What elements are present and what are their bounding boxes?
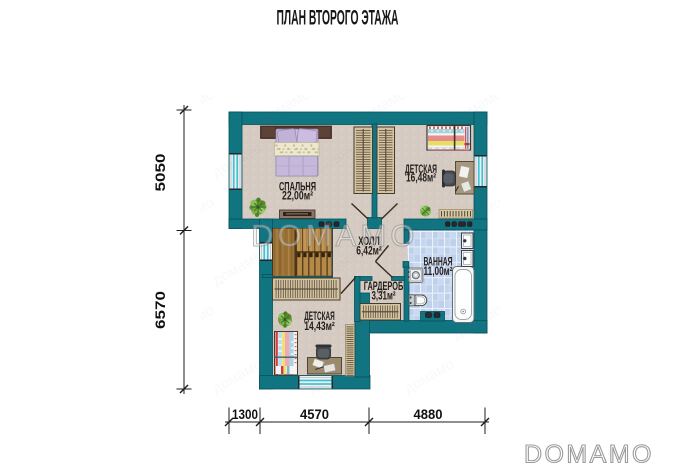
svg-text:3,31м²: 3,31м²	[372, 289, 396, 303]
svg-text:4570: 4570	[300, 407, 329, 422]
svg-text:4880: 4880	[414, 407, 443, 422]
svg-text:5050: 5050	[153, 154, 168, 192]
svg-text:14,43м²: 14,43м²	[304, 319, 335, 333]
svg-text:DOMAMO: DOMAMO	[251, 218, 419, 253]
svg-text:6570: 6570	[153, 291, 168, 329]
svg-text:DOMAMO: DOMAMO	[524, 441, 656, 469]
svg-text:ПЛАН ВТОРОГО ЭТАЖА: ПЛАН ВТОРОГО ЭТАЖА	[277, 7, 399, 30]
svg-text:1300: 1300	[232, 407, 258, 422]
